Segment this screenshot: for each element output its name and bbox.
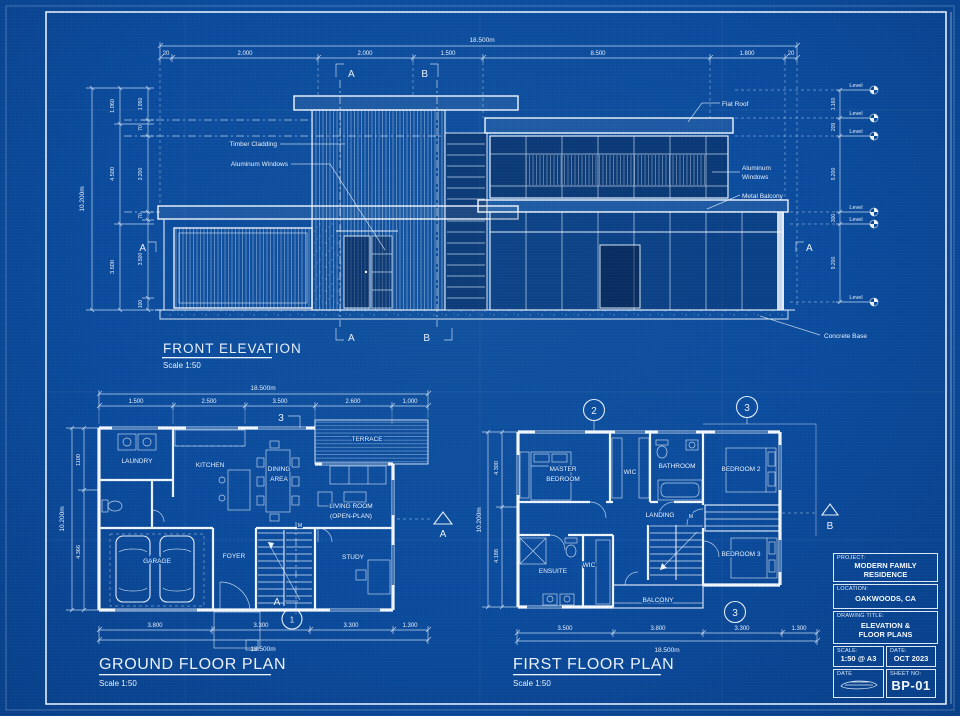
elevation-title: FRONT ELEVATION Scale 1:50 [162, 341, 302, 370]
dim-label: 70 [138, 125, 144, 131]
glazed-link [445, 133, 487, 310]
dim-label: 100 [138, 300, 144, 309]
title-block-signature: DATE [833, 669, 884, 698]
dim-label: 4.188 [494, 549, 500, 563]
ff-grid-2: 2 [591, 406, 597, 417]
dim-label: 9.200 [831, 257, 837, 270]
gf-total-dim-bottom: 18.500m [250, 646, 275, 653]
room-dining2: AREA [270, 476, 288, 483]
section-a-right: A [806, 243, 813, 254]
ff-total-dim: 18.500m [654, 647, 679, 654]
gf-bottom-dimensions: 3.800 3.300 3.300 1.300 18.500m [97, 623, 431, 653]
balcony-slab [478, 200, 788, 212]
gf-side-a: A [440, 529, 447, 540]
ff-grid-3: 3 [744, 403, 750, 414]
drawing-title-line1: ELEVATION & [837, 621, 934, 630]
section-a-top: A [348, 69, 355, 80]
elevation-total-dim: 18.500m [469, 37, 494, 44]
corner-column [777, 212, 784, 310]
room-balcony: BALCONY [642, 597, 674, 604]
project-value-line1: MODERN FAMILY [837, 561, 934, 570]
title-block-location: LOCATION: OAKWOODS, CA [833, 584, 938, 609]
drawing-title-label: DRAWING TITLE: [837, 613, 934, 619]
aluminum-windows-label: Aluminum Windows [231, 161, 289, 168]
title-block-drawing-title: DRAWING TITLE: ELEVATION & FLOOR PLANS [833, 611, 938, 644]
dim-label: 2.600 [345, 399, 361, 405]
dim-label: 20 [163, 51, 170, 57]
ff-left-total: 10.200m [476, 507, 483, 532]
dim-label: 1.160 [831, 98, 837, 111]
dim-label: 3.500 [272, 399, 288, 405]
room-living: LIVING ROOM [329, 503, 372, 510]
elevation-scale-text: Scale 1:50 [163, 361, 201, 370]
signature [838, 677, 880, 691]
room-terrace: TERRACE [351, 436, 383, 443]
door-handle [365, 271, 367, 273]
gf-grid-3: 3 [278, 413, 284, 424]
level-label: Level [849, 205, 862, 211]
dim-label: 1.500 [128, 399, 144, 405]
front-elevation: 18.500m 20 2.000 2.000 1.500 8.500 1.800… [79, 37, 878, 370]
blueprint-sheet: 18.500m 20 2.000 2.000 1.500 8.500 1.800… [0, 0, 960, 716]
dim-label: 1100 [76, 454, 82, 466]
gf-section-a: A [274, 597, 281, 608]
location-label: LOCATION: [837, 586, 934, 592]
section-b-bottom: B [423, 333, 430, 344]
concrete-base [160, 310, 788, 319]
drawing-title-line2: FLOOR PLANS [837, 630, 934, 639]
concrete-base-label: Concrete Base [824, 333, 867, 340]
room-garage: GARAGE [143, 558, 171, 565]
room-wic: WIC [624, 469, 637, 476]
dim-label: 3.300 [734, 626, 750, 632]
metal-balcony-label: Metal Balcony [742, 193, 784, 200]
level-flag-icons [870, 86, 878, 306]
sheet-label: SHEET NO: [890, 671, 932, 677]
section-a-bottom: A [348, 333, 355, 344]
elevation-building [155, 96, 795, 319]
garage-door [174, 228, 312, 308]
location-value: OAKWOODS, CA [837, 594, 934, 603]
gf-left-total: 10.200m [59, 506, 66, 531]
dim-label: 3.200 [138, 168, 144, 181]
gf-title-text: GROUND FLOOR PLAN [99, 656, 286, 673]
level-flags: Level Level Level Level Level Level [846, 83, 878, 306]
dim-label: 3.300 [253, 623, 269, 629]
room-master2: BEDROOM [546, 476, 580, 483]
room-kitchen: KITCHEN [196, 462, 225, 469]
aluminum-windows-right-label: Aluminum [742, 165, 771, 172]
first-floor-plan: 2 3 10.200m 4.300 4.188 [476, 397, 838, 689]
blueprint-drawing: 18.500m 20 2.000 2.000 1.500 8.500 1.800… [0, 0, 960, 716]
room-bathroom: BATHROOM [658, 463, 695, 470]
dim-label: 1.000 [402, 399, 418, 405]
section-a-left: A [139, 243, 146, 254]
room-landing: LANDING [646, 512, 675, 519]
dim-label: 4.500 [110, 167, 116, 181]
flat-roof-slab [485, 118, 733, 133]
title-block: PROJECT: MODERN FAMILY RESIDENCE LOCATIO… [833, 553, 938, 698]
window-louvers [526, 155, 706, 185]
rear-door [600, 245, 640, 308]
aluminum-windows-right-label2: Windows [742, 174, 769, 181]
wic2-rack [596, 540, 610, 604]
room-wic2: WIC [583, 562, 596, 569]
level-label: Level [849, 83, 862, 89]
gf-total-dim: 18.500m [250, 385, 275, 392]
title-block-scale: SCALE: 1:50 @ A3 [833, 646, 884, 667]
level-label: Level [849, 111, 862, 117]
gf-circle-1: 1 [290, 616, 295, 625]
dim-label: 20 [788, 51, 795, 57]
dim-label: 1.300 [402, 623, 418, 629]
ff-bottom-dimensions: 3.500 3.800 3.300 1.300 18.500m [515, 626, 820, 654]
gf-scale-text: Scale 1:50 [99, 679, 137, 688]
level-label: Level [849, 129, 862, 135]
ff-side-b: B [827, 521, 834, 532]
tower-roof-slab [294, 96, 518, 110]
stipple-wall [314, 221, 342, 308]
project-value-line2: RESIDENCE [837, 570, 934, 579]
room-living2: (OPEN-PLAN) [330, 513, 372, 520]
dim-label: 70 [138, 213, 144, 219]
marker-m: M [298, 523, 302, 529]
flat-roof-label: Flat Roof [722, 101, 749, 108]
dim-label: 3.800 [650, 626, 666, 632]
scale-value: 1:50 @ A3 [837, 654, 880, 663]
ff-left-dimensions: 10.200m 4.300 4.188 [476, 430, 518, 609]
dim-label: 300 [831, 214, 837, 223]
dim-label: 3.300 [343, 623, 359, 629]
level-label: Level [849, 217, 862, 223]
dim-label: 1.300 [791, 626, 807, 632]
room-ensuite: ENSUITE [539, 568, 568, 575]
ff-circle-3: 3 [732, 608, 738, 619]
garage-roof-slab [158, 206, 518, 219]
title-block-date: DATE: OCT 2023 [886, 646, 936, 667]
garage-cars [110, 534, 204, 606]
dim-label: 4.300 [494, 461, 500, 475]
room-dining: DINING [268, 466, 291, 473]
dim-label: 2.500 [201, 399, 217, 405]
study-desk [368, 560, 390, 594]
section-b-top: B [421, 69, 428, 80]
room-bedroom3: BEDROOM 3 [721, 551, 760, 558]
sheet-number: BP-01 [890, 678, 932, 694]
title-block-sheet: SHEET NO: BP-01 [886, 669, 936, 698]
dim-label: 209 [831, 123, 837, 132]
elevation-left-total: 10.200m [79, 186, 86, 211]
dim-label: 5.200 [831, 168, 837, 181]
dim-label: 4.366 [76, 545, 82, 559]
ff-title: FIRST FLOOR PLAN Scale 1:50 [513, 656, 674, 688]
dim-label: 3.500 [557, 626, 573, 632]
ff-title-text: FIRST FLOOR PLAN [513, 656, 674, 673]
ff-stairs [650, 525, 703, 580]
dim-label: 1.800 [739, 51, 755, 57]
timber-cladding-label: Timber Cladding [230, 141, 278, 148]
room-bedroom2: BEDROOM 2 [721, 466, 760, 473]
room-master: MASTER [549, 466, 576, 473]
dim-label: 1.500 [440, 51, 456, 57]
dim-label: 8.500 [590, 51, 606, 57]
dim-label: 2.000 [357, 51, 373, 57]
elevation-title-text: FRONT ELEVATION [163, 341, 302, 356]
title-block-project: PROJECT: MODERN FAMILY RESIDENCE [833, 553, 938, 582]
date-value: OCT 2023 [890, 654, 932, 663]
gf-left-dimensions: 10.200m 1100 4.366 [59, 426, 99, 612]
dim-label: 3.800 [147, 623, 163, 629]
level-label: Level [849, 295, 862, 301]
gf-stairs [258, 530, 312, 606]
dim-label: 2.000 [237, 51, 253, 57]
sofa [330, 466, 386, 484]
room-foyer: FOYER [223, 553, 246, 560]
room-laundry: LAUNDRY [122, 458, 154, 465]
gf-top-dimensions: 18.500m 1.500 2.500 3.500 2.600 1.000 [97, 385, 431, 424]
room-study: STUDY [342, 554, 365, 561]
ground-floor-plan: 18.500m 1.500 2.500 3.500 2.600 1.000 10… [59, 385, 452, 688]
master-wardrobe [520, 452, 529, 498]
gf-title: GROUND FLOOR PLAN Scale 1:50 [99, 656, 286, 688]
dim-label: 3.600 [110, 260, 116, 274]
dim-label: 1.060 [110, 99, 116, 113]
wardrobe-band [705, 505, 780, 531]
ff-scale-text: Scale 1:50 [513, 679, 551, 688]
dim-label: 3.500 [138, 253, 144, 266]
marker-m: M [689, 514, 693, 520]
dim-label: 1.950 [138, 98, 144, 111]
